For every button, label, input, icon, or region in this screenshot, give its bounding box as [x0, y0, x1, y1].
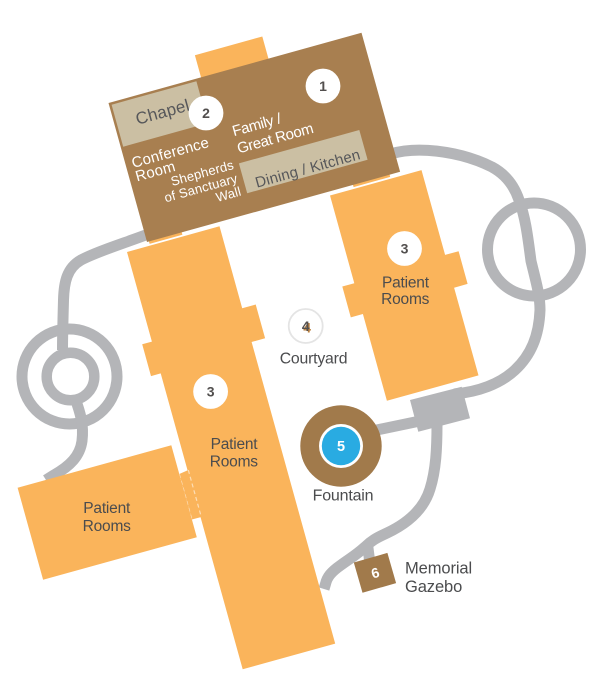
- svg-text:5: 5: [337, 439, 345, 455]
- svg-text:Rooms: Rooms: [83, 518, 132, 535]
- svg-text:3: 3: [401, 241, 409, 257]
- svg-text:3: 3: [207, 384, 215, 400]
- svg-text:Rooms: Rooms: [210, 454, 259, 471]
- svg-text:4: 4: [302, 318, 310, 334]
- svg-text:Fountain: Fountain: [313, 488, 374, 505]
- svg-text:Patient: Patient: [83, 500, 131, 517]
- svg-text:1: 1: [319, 78, 327, 94]
- svg-text:Memorial: Memorial: [405, 560, 472, 578]
- svg-text:2: 2: [202, 105, 210, 121]
- svg-text:Rooms: Rooms: [381, 291, 430, 308]
- svg-text:Patient: Patient: [211, 436, 259, 453]
- svg-text:Gazebo: Gazebo: [405, 578, 462, 596]
- svg-text:Courtyard: Courtyard: [280, 351, 348, 368]
- svg-text:Patient: Patient: [382, 274, 430, 291]
